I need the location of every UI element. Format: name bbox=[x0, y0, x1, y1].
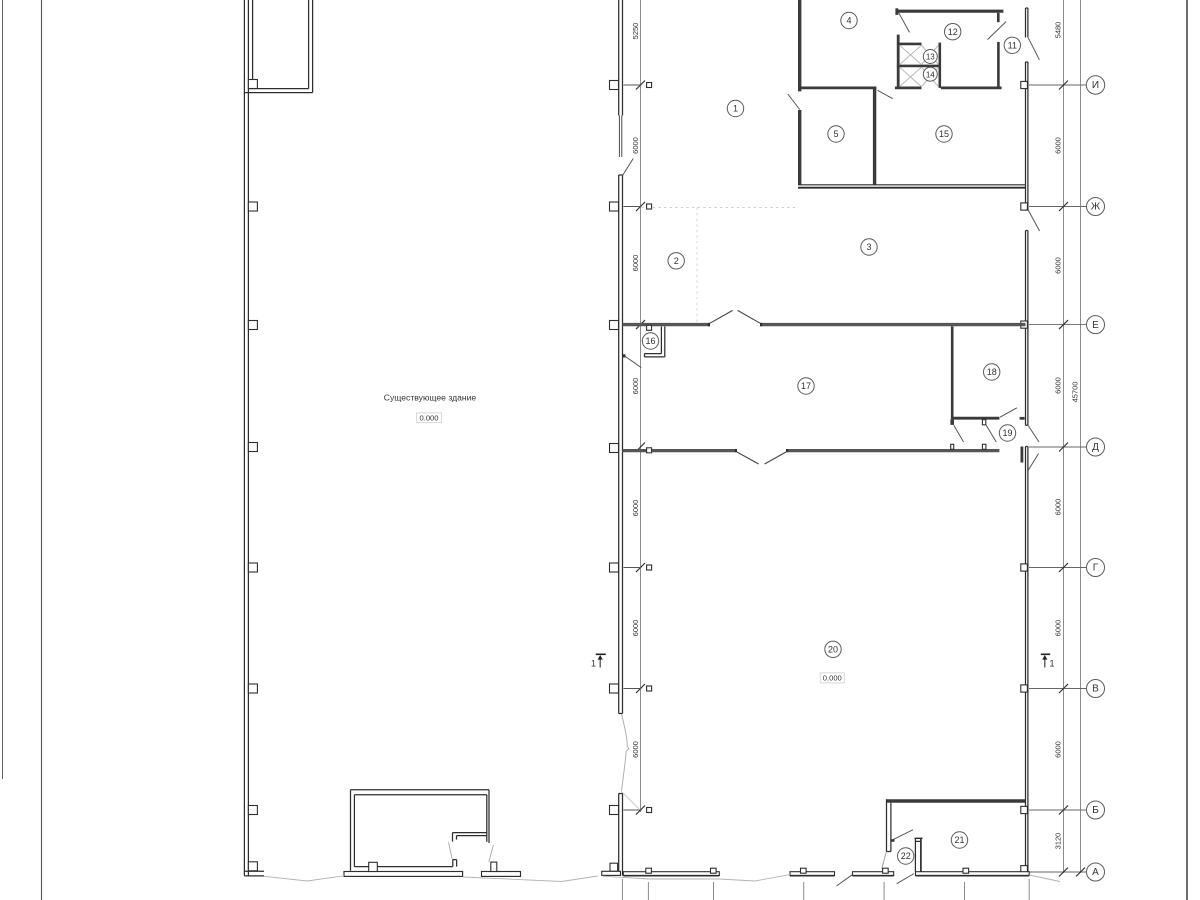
svg-text:6000: 6000 bbox=[1054, 377, 1063, 394]
svg-text:Е: Е bbox=[1092, 320, 1099, 331]
svg-text:6000: 6000 bbox=[1054, 620, 1063, 637]
svg-text:16: 16 bbox=[645, 336, 655, 346]
svg-text:Существующее здание: Существующее здание bbox=[384, 393, 477, 403]
svg-text:14: 14 bbox=[926, 70, 935, 79]
svg-text:6000: 6000 bbox=[631, 741, 640, 758]
svg-text:И: И bbox=[1092, 80, 1099, 91]
svg-text:18: 18 bbox=[987, 367, 997, 377]
svg-text:5480: 5480 bbox=[1054, 22, 1063, 39]
svg-text:22: 22 bbox=[901, 851, 911, 861]
svg-text:6000: 6000 bbox=[631, 500, 640, 517]
svg-text:1: 1 bbox=[591, 659, 596, 669]
svg-text:45700: 45700 bbox=[1071, 382, 1080, 403]
svg-text:5250: 5250 bbox=[631, 23, 640, 40]
svg-text:3120: 3120 bbox=[1054, 833, 1063, 850]
svg-text:В: В bbox=[1092, 684, 1099, 695]
svg-text:17: 17 bbox=[801, 381, 811, 391]
svg-text:0.000: 0.000 bbox=[419, 413, 438, 422]
svg-text:0.000: 0.000 bbox=[823, 674, 842, 683]
svg-text:20: 20 bbox=[828, 645, 838, 655]
svg-text:6000: 6000 bbox=[631, 620, 640, 637]
svg-text:11: 11 bbox=[1008, 41, 1017, 51]
svg-text:6000: 6000 bbox=[1054, 499, 1063, 516]
svg-text:Б: Б bbox=[1092, 805, 1099, 816]
svg-text:5: 5 bbox=[833, 129, 838, 139]
svg-text:6000: 6000 bbox=[631, 255, 640, 272]
svg-text:6000: 6000 bbox=[1054, 137, 1063, 154]
svg-text:15: 15 bbox=[939, 129, 949, 139]
svg-text:21: 21 bbox=[954, 835, 964, 845]
svg-text:4: 4 bbox=[846, 16, 851, 26]
svg-text:3: 3 bbox=[866, 242, 871, 252]
svg-text:19: 19 bbox=[1002, 428, 1012, 438]
svg-text:6000: 6000 bbox=[631, 378, 640, 395]
svg-text:Д: Д bbox=[1092, 442, 1099, 453]
svg-text:Г: Г bbox=[1093, 563, 1099, 574]
svg-text:6000: 6000 bbox=[1054, 741, 1063, 758]
svg-text:2: 2 bbox=[674, 256, 679, 266]
svg-text:6000: 6000 bbox=[631, 137, 640, 154]
svg-text:А: А bbox=[1092, 867, 1099, 878]
svg-text:1: 1 bbox=[733, 104, 738, 114]
svg-text:Ж: Ж bbox=[1091, 202, 1101, 213]
svg-text:1: 1 bbox=[1050, 659, 1055, 669]
svg-text:13: 13 bbox=[926, 53, 935, 62]
svg-text:12: 12 bbox=[948, 27, 958, 37]
svg-text:6000: 6000 bbox=[1054, 257, 1063, 274]
